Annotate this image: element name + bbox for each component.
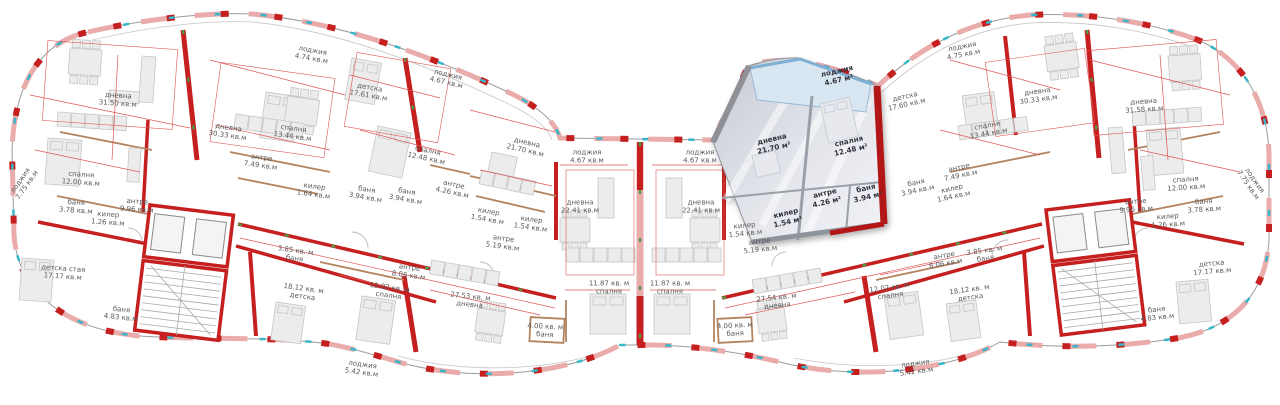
room-label: баня3.78 кв.м xyxy=(59,197,94,216)
room-label: баня4.83 кв.м xyxy=(103,304,138,324)
room-label: спалня12.48 кв.м xyxy=(407,143,448,167)
room-label: дневна22.41 кв.м xyxy=(561,199,599,216)
room-label: антре7.49 кв.м xyxy=(942,160,978,183)
room-label: 11.87 кв. мспалня xyxy=(650,280,690,297)
room-label: 12.02 кв. мспалня xyxy=(368,281,410,303)
room-label: дневна31.50 кв.м xyxy=(98,90,137,109)
room-label: детска стая17.17 кв.м xyxy=(40,263,85,283)
room-label-selected: дневна21.70 м² xyxy=(754,132,791,157)
room-label: баня4.83 кв.м xyxy=(1139,304,1174,324)
room-label: дневна22.41 кв.м xyxy=(682,199,720,216)
room-label: 27.54 кв. мдневна xyxy=(756,292,798,313)
room-label-selected: килер1.54 м² xyxy=(771,206,803,229)
room-label: дневна31.58 кв.м xyxy=(1124,96,1163,115)
floor-plan-stage: лоджия7.75 кв.мдневна31.50 кв.мспалня12.… xyxy=(0,0,1280,405)
room-label: дневна30.33 кв.м xyxy=(1018,85,1058,107)
room-label: спалня12.00 кв.м xyxy=(1166,174,1205,193)
room-label: лоджия4.75 кв.м xyxy=(945,40,981,63)
room-label: килер1.64 кв.м xyxy=(296,180,332,201)
room-label: антре4.26 кв.м xyxy=(435,177,471,200)
room-label: лоджия5.42 кв.м xyxy=(898,357,934,378)
room-label: детска17.60 кв.м xyxy=(886,89,927,114)
room-label: антре9.96 кв.м xyxy=(1119,196,1154,215)
room-label: килер1.26 кв.м xyxy=(1151,211,1186,230)
room-label: лоджия5.42 кв.м xyxy=(344,358,380,379)
room-label: антре5.19 кв.м xyxy=(742,236,777,256)
room-label: спалня13.44 кв.м xyxy=(273,122,313,144)
room-label: 18.12 кв. мдетска xyxy=(282,282,324,304)
room-label: лоджия4.67 кв.м xyxy=(570,149,604,166)
room-label: 12.02 кв. мспалня xyxy=(869,281,911,303)
room-label-selected: антре4.26 м² xyxy=(810,186,842,209)
room-label: антре7.49 кв.м xyxy=(243,151,279,172)
room-label: килер1.54 кв.м xyxy=(470,205,506,227)
room-label-selected: баня3.94 м² xyxy=(851,181,883,204)
room-label: 3.85 кв. мбаня xyxy=(966,244,1004,266)
room-label: антре5.19 кв.м xyxy=(485,232,521,253)
room-label: детска17.61 кв.м xyxy=(349,80,389,103)
room-label: 27.53 кв. мдневна xyxy=(449,291,491,312)
room-label: килер1.54 кв.м xyxy=(513,213,549,234)
room-label: спалня13.44 кв.м xyxy=(968,118,1008,141)
room-label: дневна30.33 кв.м xyxy=(208,121,248,143)
room-label: лоджия4.67 кв.м xyxy=(429,67,466,91)
room-label: дневна21.70 кв.м xyxy=(506,135,547,160)
room-label: килер1.26 кв.м xyxy=(91,209,126,228)
room-label: килер1.54 кв.м xyxy=(727,220,762,240)
room-label: 3.85 кв. мбаня xyxy=(276,244,314,266)
room-label: лоджия4.74 кв.м xyxy=(294,44,330,66)
room-label-selected: лоджия4.67 м² xyxy=(820,64,856,88)
room-label: антре8.06 кв.м xyxy=(391,261,427,282)
room-label: антре8.06 кв.м xyxy=(927,249,963,271)
room-label: лоджия7.75 кв.м xyxy=(7,164,40,201)
room-label: лоджия7.75 кв.м xyxy=(1234,164,1267,201)
room-label: детска17.17 кв.м xyxy=(1192,258,1231,278)
room-labels-layer: лоджия7.75 кв.мдневна31.50 кв.мспалня12.… xyxy=(0,0,1280,405)
room-label: килер1.64 кв.м xyxy=(935,181,971,204)
room-label: 11.87 кв. мспалня xyxy=(589,280,629,297)
room-label: баня3.94 кв.м xyxy=(899,175,935,198)
room-label-selected: спалня12.48 м² xyxy=(831,134,868,159)
room-label: баня3.94 кв.м xyxy=(348,183,384,205)
room-label: спалня12.00 кв.м xyxy=(61,169,100,188)
room-label: баня3.78 кв.м xyxy=(1187,196,1222,215)
room-label: баня3.94 кв.м xyxy=(388,185,424,207)
room-label: лоджия4.67 кв.м xyxy=(683,149,717,166)
room-label: 4.00 кв. мбаня xyxy=(527,322,564,341)
room-label: 18.12 кв. мдетска xyxy=(949,283,991,305)
room-label: 4.00 кв. мбаня xyxy=(717,321,754,340)
room-label: антре9.96 кв.м xyxy=(120,196,155,215)
